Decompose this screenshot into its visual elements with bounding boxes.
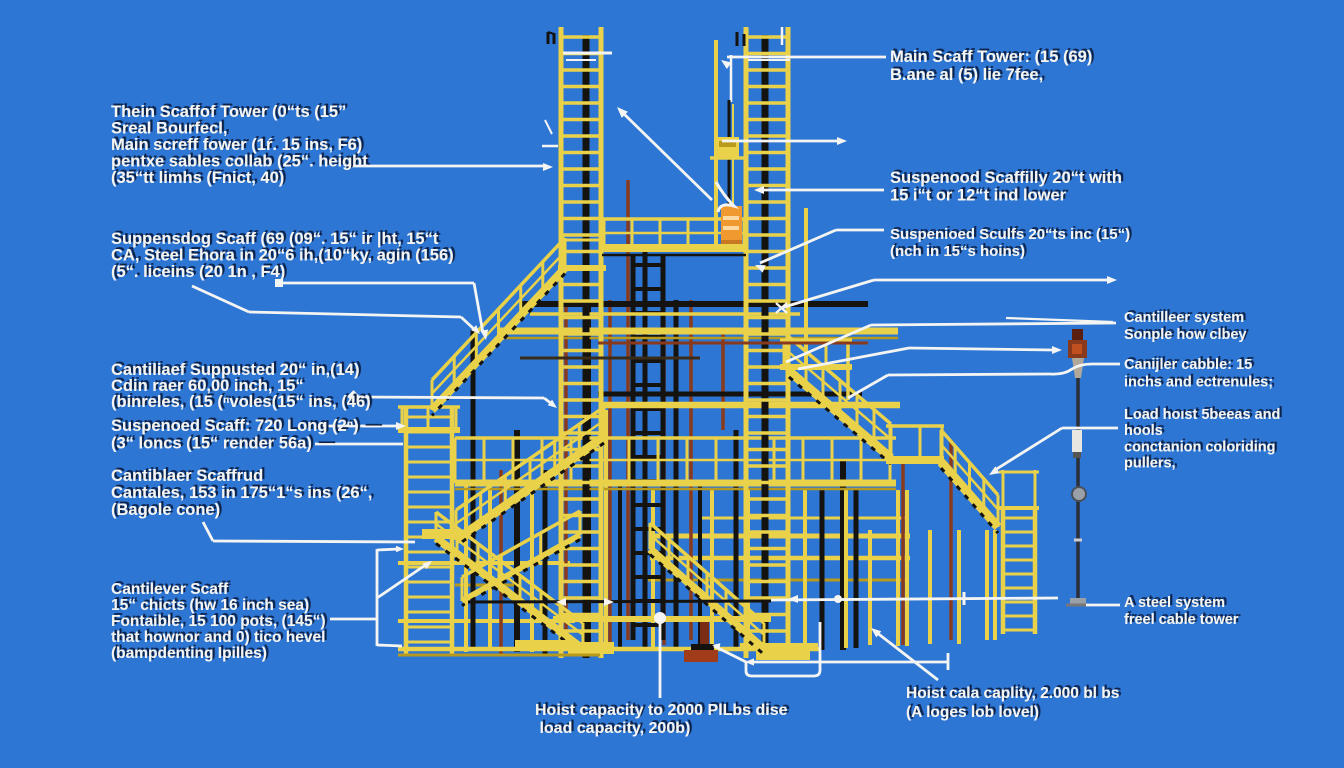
svg-text:A steel systemfreel cable towe: A steel systemfreel cable tower	[1124, 595, 1239, 628]
svg-text:Cantilleer systemSonple how cl: Cantilleer systemSonple how clbey	[1124, 310, 1246, 343]
svg-text:Canijler cabble: 15inchs and e: Canijler cabble: 15inchs and ectrenules;	[1124, 357, 1273, 390]
